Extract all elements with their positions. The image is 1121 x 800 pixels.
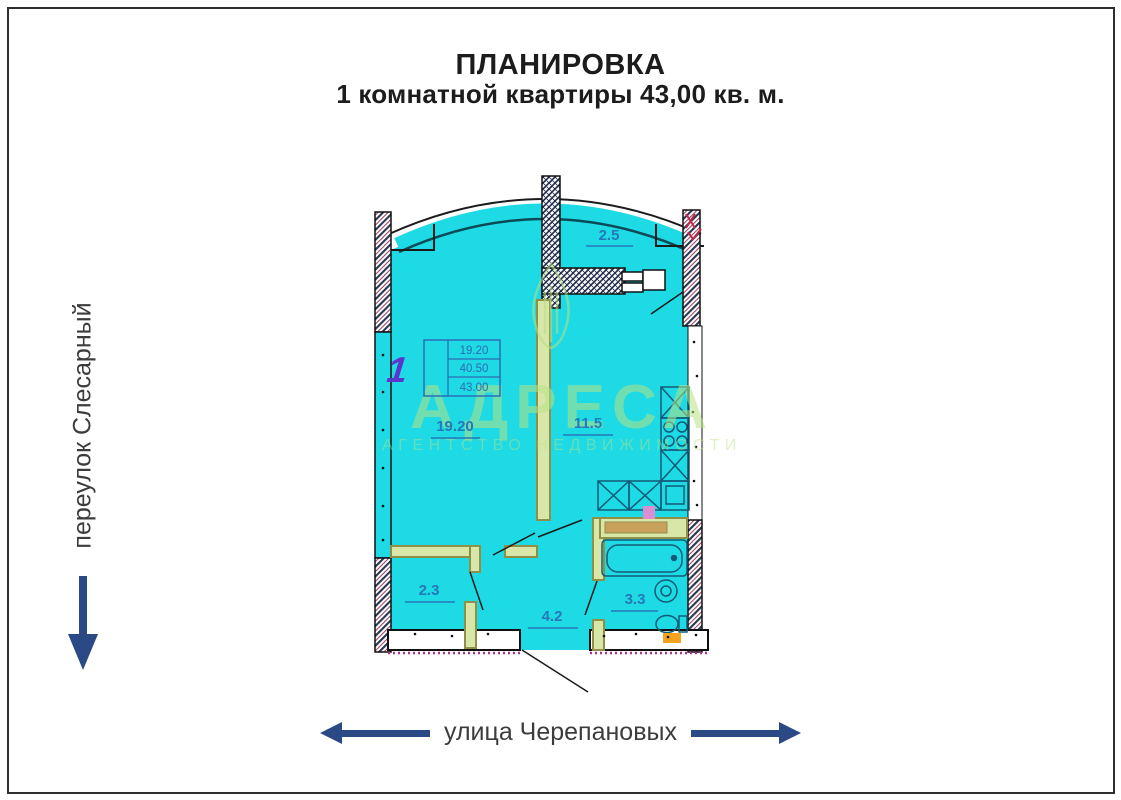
floorplan-page: ПЛАНИРОВКА 1 комнатной квартиры 43,00 кв… <box>0 0 1121 800</box>
svg-text:2.5: 2.5 <box>599 227 620 244</box>
street-bottom-block: улица Черепановых <box>0 718 1121 747</box>
left-arrow-icon <box>320 721 430 745</box>
stamp-total-with-balcony: 43.00 <box>460 382 489 394</box>
svg-text:2.3: 2.3 <box>419 582 440 599</box>
floor-plan: АДРЕСА АГЕНТСТВО НЕДВИЖИМОСТИ 2.5 19.20 … <box>0 0 1121 800</box>
street-label-bottom: улица Черепановых <box>444 718 677 747</box>
stamp-total-area: 40.50 <box>460 363 489 375</box>
appliance-marker <box>643 506 655 519</box>
svg-text:11.5: 11.5 <box>574 415 602 432</box>
watermark-subtitle: АГЕНТСТВО НЕДВИЖИМОСТИ <box>382 437 742 454</box>
svg-text:3.3: 3.3 <box>625 591 646 608</box>
right-arrow-icon <box>691 721 801 745</box>
svg-text:19.20: 19.20 <box>436 418 474 435</box>
stamp-living-area: 19.20 <box>460 345 489 357</box>
orange-marker <box>663 633 681 643</box>
svg-text:4.2: 4.2 <box>542 608 563 625</box>
